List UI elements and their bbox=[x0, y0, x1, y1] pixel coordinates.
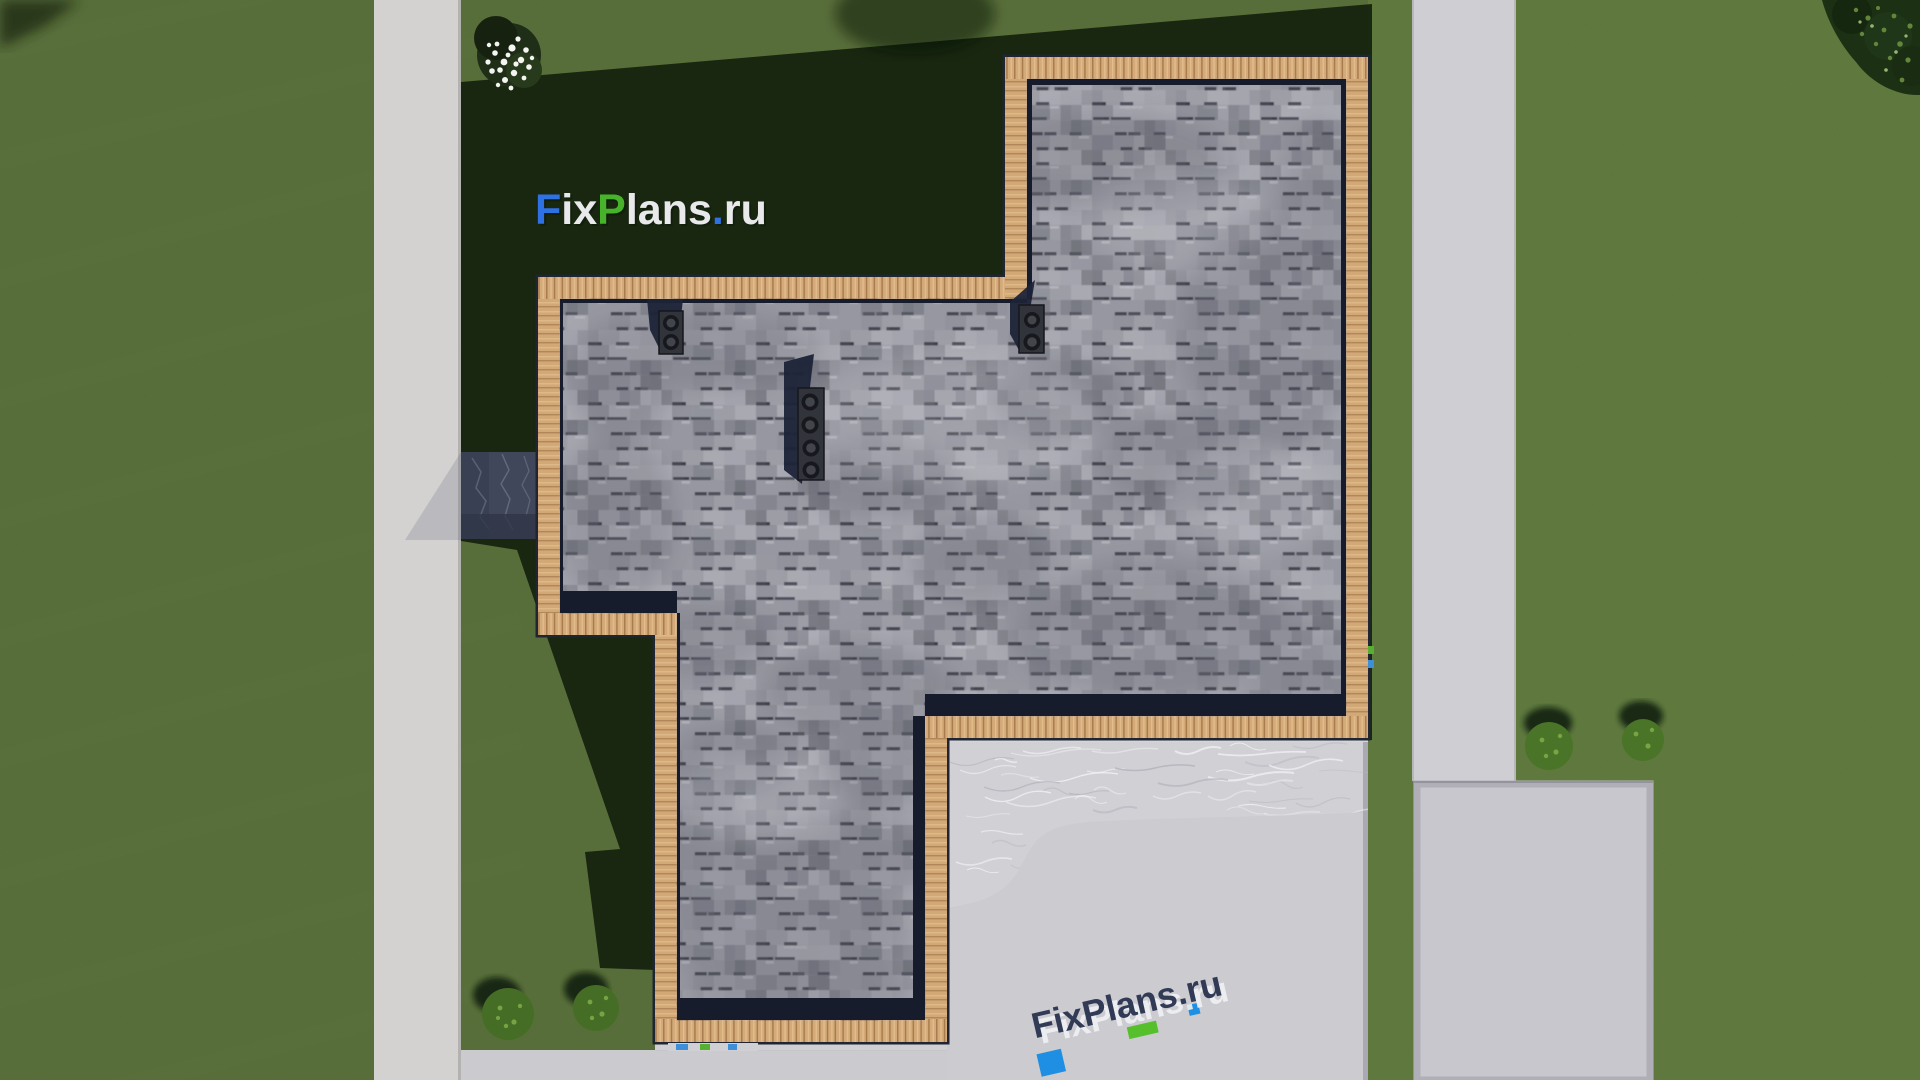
svg-text:FixPlans.ru: FixPlans.ru bbox=[535, 186, 767, 234]
